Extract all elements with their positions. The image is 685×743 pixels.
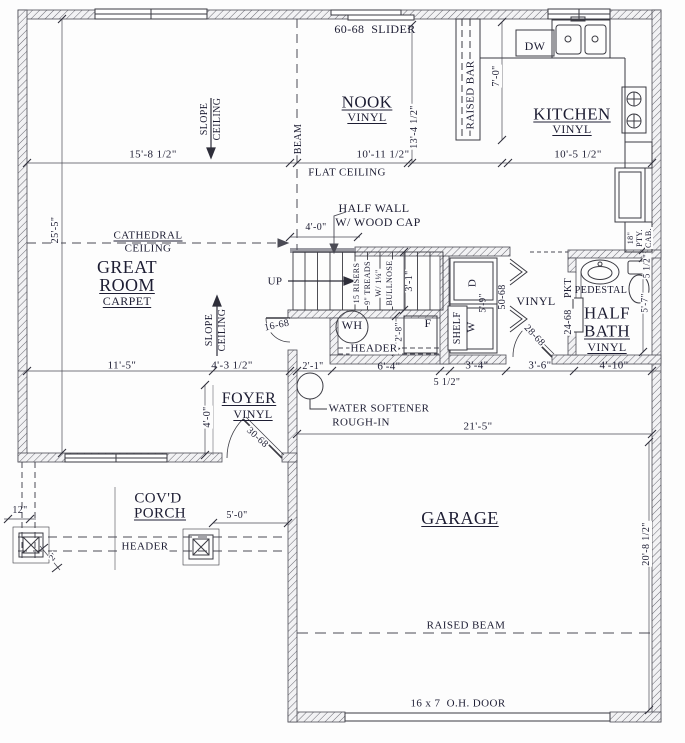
porch-post-left bbox=[13, 527, 49, 563]
porch-posts bbox=[13, 527, 219, 565]
pedestal-sink bbox=[581, 260, 619, 284]
kitchen-sink bbox=[552, 17, 610, 58]
laundry-shelf bbox=[448, 306, 467, 350]
refrigerator bbox=[615, 168, 645, 222]
stove bbox=[622, 87, 646, 133]
dishwasher bbox=[516, 30, 554, 56]
walls bbox=[18, 10, 661, 722]
furnace bbox=[404, 316, 437, 353]
kitchen-fixtures bbox=[456, 17, 652, 252]
water-softener bbox=[297, 373, 327, 409]
doors bbox=[227, 259, 610, 721]
pocket-door-24-68 bbox=[573, 272, 583, 332]
pantry-cabinet bbox=[625, 222, 652, 252]
floor-plan-drawing bbox=[0, 0, 685, 743]
dimension-lines bbox=[4, 19, 661, 710]
bifold-door-50-68 bbox=[510, 259, 527, 332]
greatroom-window-top bbox=[95, 9, 207, 19]
raised-bar bbox=[456, 19, 480, 140]
closet-door-16-68 bbox=[266, 318, 290, 342]
toilet bbox=[628, 261, 651, 303]
up-arrow bbox=[288, 277, 354, 285]
cabinet bbox=[625, 142, 652, 168]
overhead-door bbox=[345, 713, 610, 721]
slope-arrows bbox=[207, 98, 221, 356]
garage-service-door-28-68 bbox=[513, 327, 554, 357]
half-wall-leader bbox=[330, 212, 346, 253]
porch-post-right bbox=[183, 529, 219, 565]
greatroom-window-front bbox=[65, 454, 167, 462]
entry-door-30-68 bbox=[227, 417, 284, 458]
dimension-ticks bbox=[4, 15, 656, 714]
windows bbox=[65, 9, 610, 462]
